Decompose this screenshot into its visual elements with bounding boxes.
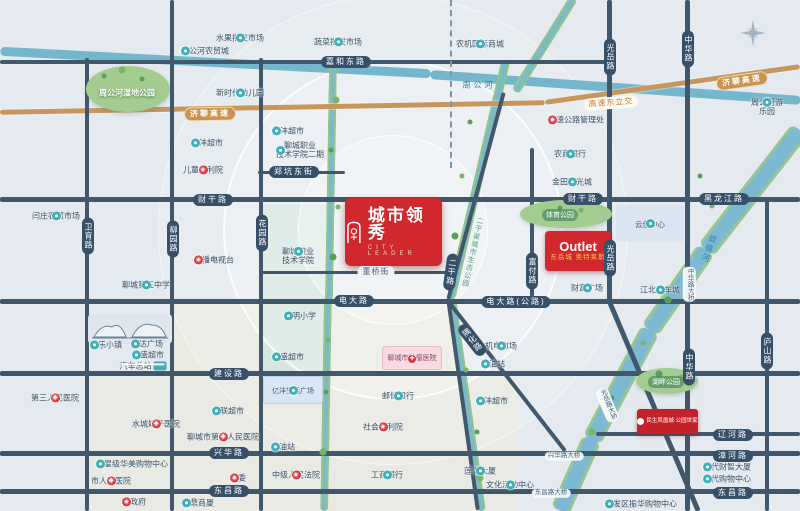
poi-zhougonghe-funfair: 周公河游乐园: [751, 98, 784, 116]
road-label-光岳路: 光岳路: [604, 39, 616, 76]
hospital-icon: ✚: [152, 419, 161, 428]
poi-zhougonghe-agritrade: 周公河农贸城: [181, 46, 229, 55]
poi-gas-station-east: 加油站: [481, 359, 505, 368]
poi-fruit-wholesale-market: 水果批发市场: [216, 33, 264, 42]
compass-icon: [740, 20, 766, 46]
road-label-董桥街: 董桥街: [358, 266, 395, 278]
poi-mech-elec-market: 机电市场: [485, 341, 517, 350]
road-liaohe: [596, 432, 800, 436]
outlet-title: Outlet: [559, 240, 597, 253]
poi-yifeng-supermarket-north: 亿沣超市: [191, 138, 223, 147]
road-dianda: [0, 299, 800, 304]
poi-huasheng-supermarket-center: 华盛超市: [272, 352, 304, 361]
office-icon: [646, 219, 655, 228]
road-label-兴华路: 兴华路: [209, 447, 249, 459]
poi-caifu-plaza: 财富广场: [571, 283, 603, 292]
road-label-建设路: 建设路: [209, 368, 249, 380]
tree-icon: [641, 341, 646, 346]
tumor-hospital-box: 聊城市肿瘤医院 ✚: [382, 346, 442, 370]
poi-yanzhuang-farmers-market: 闫庄农贸市场: [32, 211, 80, 220]
road-label-中华路大桥: 中华路大桥: [683, 267, 696, 302]
road-label-济聊高速: 济聊高速: [715, 70, 768, 91]
road-label-财干路: 财干路: [563, 193, 603, 205]
road-label-济聊高速: 济聊高速: [184, 107, 236, 122]
road-label-柳园路: 柳园路: [167, 221, 179, 258]
poi-intermediate-court: ★中级人民法院: [272, 470, 320, 479]
shop-icon: [289, 386, 298, 395]
poi-vegetable-wholesale-market: 蔬菜批发市场: [314, 37, 362, 46]
road-label-电大路(公路): 电大路(公路): [481, 296, 550, 308]
place-dot-icon: [383, 470, 392, 479]
road-label-东昌路: 东昌路: [713, 487, 753, 499]
project-name: 城市领秀: [368, 207, 442, 241]
poi-joy-town: 欢乐小镇: [90, 340, 122, 349]
road-label-中华路: 中华路: [683, 349, 695, 386]
poi-social-welfare-institute: ★社会福利院: [363, 422, 403, 431]
government-icon: ★: [199, 165, 208, 174]
poi-five-star-huamei-mall: 五星级华美购物中心: [96, 459, 168, 468]
tree-icon: [102, 74, 107, 79]
road-huayuan: [259, 58, 263, 511]
road-label-电大路: 电大路: [334, 295, 374, 307]
tree-icon: [324, 390, 329, 395]
area-label-周公河: 周公河: [463, 80, 496, 91]
yifeng-life-plaza-box: 亿沣生活广场: [263, 376, 323, 404]
project-subtitle: CITY LEADER: [368, 245, 442, 257]
road-label-中华路: 中华路: [682, 31, 694, 68]
road-dongqiao-st: [261, 271, 452, 274]
place-dot-icon: [566, 149, 575, 158]
poi-vocational-college: 聊城职业 技术学院: [282, 247, 314, 265]
tree-icon: [475, 430, 480, 435]
poi-no5-middle-school: 聊城第五中学: [122, 280, 170, 289]
government-icon: ★: [292, 470, 301, 479]
poi-icbc-bank: 工商银行: [371, 470, 403, 479]
poi-agri-machinery-mall: 农机国际商城: [456, 39, 504, 48]
tree-icon: [320, 449, 327, 456]
road-label-光岳路: 光岳路: [604, 240, 616, 277]
poi-label: 开发区振华购物中心: [605, 499, 677, 508]
area-label-湖畔公园: 湖畔公园: [648, 376, 684, 388]
poi-municipal-committee: ★市委: [230, 473, 246, 482]
poi-vocational-college-phase2: 聊城职业 技术学院二期: [276, 141, 324, 159]
road-jiahe-east: [0, 60, 607, 64]
place-dot-icon: [763, 98, 772, 107]
tree-icon: [140, 77, 145, 82]
road-dongchang: [0, 489, 800, 494]
tree-icon: [336, 205, 341, 210]
poi-kaifaqu-zhenhua-mall: 开发区振华购物中心: [605, 499, 677, 508]
minsheng-project-banner: 民生凤凰城·公园世家: [637, 409, 698, 434]
poi-no3-peoples-hospital: ✚第三人民医院: [31, 393, 79, 402]
poi-rural-commercial-bank: 农商银行: [554, 149, 586, 158]
poi-cultural-activity-center: 文化活动中心: [486, 480, 534, 489]
place-dot-icon: [294, 247, 303, 256]
road-planned-dashed: [450, 0, 452, 168]
road-label-花园路: 花园路: [256, 215, 268, 252]
poi-new-era-kindergarten: 新时代幼儿园: [216, 88, 264, 97]
location-map: 城市领秀 CITY LEADER Outlet 东岳城 奥特莱斯 民生凤凰城·公…: [0, 0, 800, 511]
road-xinghua-zhanghe: [0, 451, 800, 456]
poi-yifeng-supermarket-west: 亿沣超市: [272, 126, 304, 135]
place-dot-icon: [334, 37, 343, 46]
hospital-icon: ✚: [51, 393, 60, 402]
tree-icon: [665, 297, 672, 304]
place-dot-icon: [497, 341, 506, 350]
area-label-体育公园: 体育公园: [542, 209, 578, 221]
road-label-财干路: 财干路: [193, 194, 233, 206]
outlet-subtitle: 东岳城 奥特莱斯: [550, 255, 605, 262]
place-dot-icon: [656, 285, 665, 294]
road-label-兴华路大桥: 兴华路大桥: [545, 452, 584, 461]
place-dot-icon: [236, 33, 245, 42]
tree-icon: [589, 429, 596, 436]
road-label-卫育路: 卫育路: [82, 218, 94, 255]
poi-jintian-sunshine-city: 金田阳光城: [552, 177, 592, 186]
road-label-嘉和东路: 嘉和东路: [321, 56, 371, 68]
minsheng-logo-icon: [637, 418, 644, 425]
tree-icon: [464, 368, 469, 373]
place-dot-icon: [394, 391, 403, 400]
area-label-周公河湿地公园: 周公河湿地公园: [99, 88, 155, 99]
tree-icon: [698, 174, 703, 179]
tree-icon: [579, 208, 584, 213]
project-logo-icon: [345, 217, 363, 247]
place-dot-icon: [476, 466, 485, 475]
road-label-郑坑东街: 郑坑东街: [269, 166, 319, 178]
tree-icon: [119, 67, 126, 74]
tree-icon: [326, 338, 331, 343]
road-label-东昌路: 东昌路: [209, 485, 249, 497]
place-dot-icon: [52, 211, 61, 220]
hospital-icon: ✚: [219, 432, 228, 441]
tree-icon: [452, 233, 459, 240]
tree-icon: [329, 148, 334, 153]
bus-icon: [154, 362, 167, 371]
poi-bus-terminal: 汽车总站: [120, 361, 167, 370]
place-dot-icon: [583, 283, 592, 292]
tree-icon: [468, 120, 473, 125]
poi-jiangbei-auto-city: 江北汽车城: [640, 285, 680, 294]
poi-jinding-mall: 金鼎商厦: [182, 498, 214, 507]
poi-highway-admin-office: 高速公路管理处★: [548, 115, 604, 124]
road-label-漳河路: 漳河路: [713, 450, 753, 462]
yunchuang-center-box: 云创中心: [616, 205, 684, 242]
road-label-黑龙江路: 黑龙江路: [699, 193, 749, 205]
place-dot-icon: [506, 480, 515, 489]
poi-dangdai-caizhi-tower: 当代财智大厦: [703, 462, 751, 471]
poi-hualian-supermarket: 华联超市: [212, 406, 244, 415]
place-dot-icon: [236, 88, 245, 97]
tree-icon: [460, 174, 465, 179]
project-badge: 城市领秀 CITY LEADER: [345, 198, 442, 266]
poi-city-government: ★市政府: [122, 497, 146, 506]
road-label-辽河路: 辽河路: [713, 429, 753, 441]
hospital-cross-icon: ✚: [408, 355, 416, 363]
poi-shuicheng-maternity-hospital: ✚水城妇产医院: [132, 419, 180, 428]
poi-city-peoples-hospital: ✚市人民医院: [91, 476, 131, 485]
place-dot-icon: [276, 146, 285, 155]
road-label-庐山路: 庐山路: [761, 333, 773, 370]
government-icon: ★: [379, 422, 388, 431]
hospital-icon: ✚: [107, 476, 116, 485]
poi-no4-peoples-hospital: ✚聊城市第四人民医院: [187, 432, 259, 441]
place-dot-icon: [476, 39, 485, 48]
poi-wanda-plaza: 万达广场: [131, 339, 163, 348]
road-label-高速东立交: 高速东立交: [583, 95, 639, 111]
place-dot-icon: [568, 177, 577, 186]
road-label-东昌路大桥: 东昌路大桥: [532, 489, 571, 498]
outlet-badge: Outlet 东岳城 奥特莱斯: [545, 231, 611, 271]
buildings-sketch-icon: [92, 317, 168, 341]
poi-lianhu-tower: 莲湖大厦: [464, 466, 496, 475]
road-weiyu: [85, 58, 89, 511]
tree-icon: [330, 254, 337, 261]
poi-psbc-bank: 邮储银行: [382, 391, 414, 400]
place-dot-icon: [142, 280, 151, 289]
poi-huasheng-supermarket-west: 华盛超市: [132, 350, 164, 359]
tree-icon: [333, 97, 340, 104]
poi-radio-tv-station: ★广播电视台: [194, 255, 234, 264]
poi-guangming-primary-school: 光明小学: [284, 311, 316, 320]
road-zhonghua: [685, 0, 690, 511]
road-label-富付路: 富付路: [526, 253, 538, 290]
poi-dangdai-shopping-center: 当代购物中心: [703, 474, 751, 483]
poi-children-welfare-institute: ★儿童福利院: [183, 165, 223, 174]
minsheng-banner-text: 民生凤凰城·公园世家: [646, 419, 697, 425]
poi-gas-station-west: 加油站: [271, 442, 295, 451]
poi-label: 五星级华美购物中心: [96, 459, 168, 468]
poi-yifeng-supermarket-east: 亿沣超市: [476, 396, 508, 405]
